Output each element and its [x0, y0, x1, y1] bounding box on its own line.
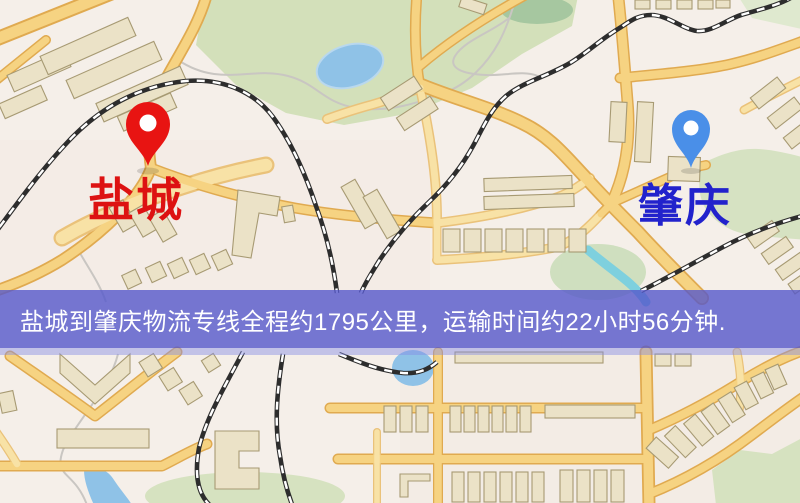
route-info-text: 盐城到肇庆物流专线全程约1795公里，运输时间约22小时56分钟.: [0, 302, 726, 337]
destination-pin[interactable]: [669, 108, 713, 170]
destination-label: 肇庆: [638, 183, 732, 228]
route-info-banner: 盐城到肇庆物流专线全程约1795公里，运输时间约22小时56分钟.: [0, 290, 800, 348]
red-location-pin-icon: [123, 100, 173, 168]
map-canvas: [0, 0, 800, 503]
origin-label: 盐城: [88, 177, 184, 223]
blue-location-pin-icon: [669, 108, 713, 170]
logistics-route-map-page: 盐城 肇庆 盐城到肇庆物流专线全程约1795公里，运输时间约22小时56分钟.: [0, 0, 800, 503]
origin-pin[interactable]: [123, 100, 173, 168]
